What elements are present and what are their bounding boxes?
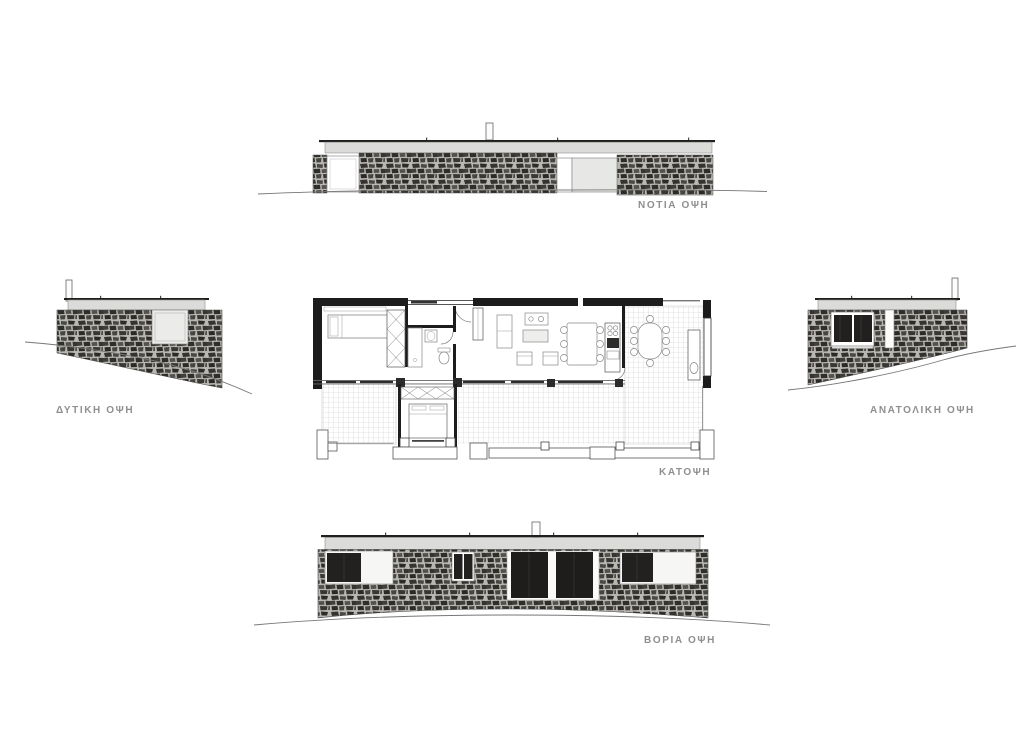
north-elevation: [252, 515, 772, 635]
glass-doors-center: [507, 551, 599, 600]
east-elevation-label: ΑΝΑΤΟΛΙΚΗ ΟΨΗ: [870, 405, 975, 416]
glass-door-opening: [557, 158, 617, 192]
roof-slab: [64, 296, 209, 300]
stone-wall: [313, 153, 713, 195]
bedroom-1: [324, 307, 388, 338]
fascia-band: [68, 300, 205, 310]
window-small: [452, 552, 474, 581]
east-elevation-drawing: [788, 272, 1016, 400]
kitchen: [605, 323, 620, 372]
floor-plan-drawing: [308, 292, 720, 468]
window-opening: [152, 310, 188, 344]
roof-slab: [321, 533, 704, 538]
bedroom-2-block: [398, 384, 457, 447]
south-elevation-drawing: [255, 115, 770, 213]
west-elevation-drawing: [25, 272, 253, 402]
grill-counter: [688, 330, 700, 380]
entry-wardrobe: [473, 308, 483, 340]
floor-plan-label: ΚΑΤΟΨΗ: [659, 467, 711, 478]
dining-table: [561, 323, 604, 365]
floor-plan: [308, 292, 720, 468]
north-elevation-drawing: [252, 515, 772, 635]
roof-slab: [319, 138, 715, 143]
chimney: [486, 123, 493, 140]
wall-return: [885, 310, 894, 348]
roof-slab: [815, 296, 960, 300]
window-right: [620, 552, 696, 584]
south-elevation: [255, 115, 770, 213]
window-dark: [831, 312, 874, 349]
chimney: [532, 522, 540, 537]
closet-hatched: [387, 310, 405, 367]
window-left: [325, 551, 393, 584]
west-elevation: [25, 272, 253, 402]
stone-wall: [57, 310, 222, 388]
drawing-sheet: ΝΟΤΙΑ ΟΨΗ ΔΥΤΙΚΗ ΟΨΗ: [0, 0, 1024, 756]
bathroom: [408, 328, 450, 367]
chimney: [952, 278, 958, 300]
north-window-entry: [408, 300, 473, 322]
fascia-band: [818, 300, 956, 310]
south-elevation-label: ΝΟΤΙΑ ΟΨΗ: [638, 200, 709, 211]
chimney: [66, 280, 72, 301]
east-elevation: [788, 272, 1016, 400]
west-elevation-label: ΔΥΤΙΚΗ ΟΨΗ: [56, 405, 134, 416]
fascia-band: [325, 538, 700, 550]
window-opening: [327, 156, 359, 192]
north-elevation-label: ΒΟΡΙΑ ΟΨΗ: [644, 635, 716, 646]
fascia-band: [325, 142, 712, 153]
living-room-furniture: [497, 313, 558, 365]
